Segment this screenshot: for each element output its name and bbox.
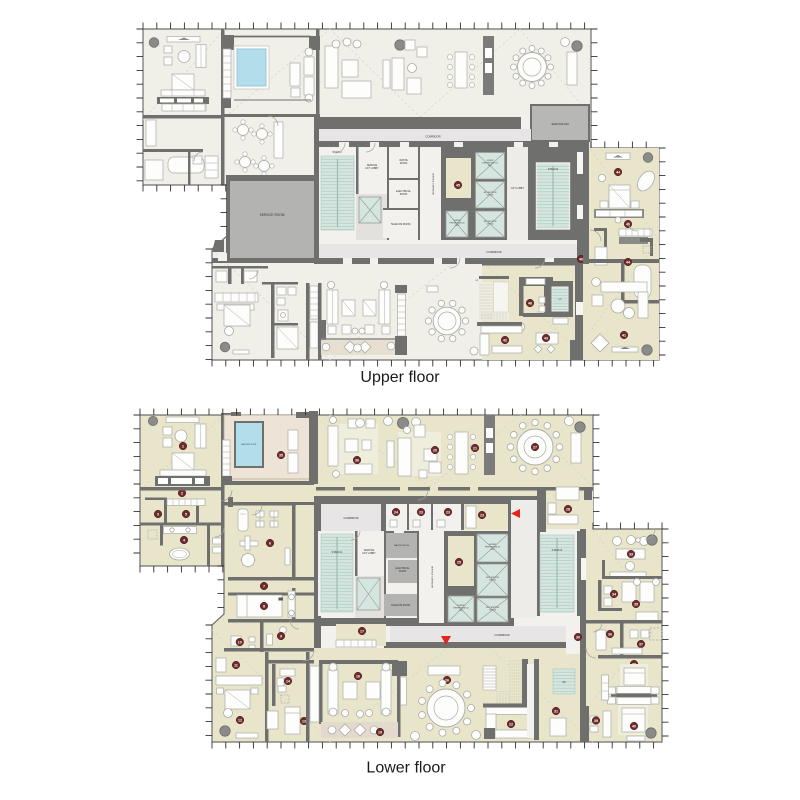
svg-text:LIFT LOBBY: LIFT LOBBY xyxy=(362,552,376,555)
svg-text:28: 28 xyxy=(566,507,570,511)
svg-text:STAIR 02: STAIR 02 xyxy=(548,168,559,171)
svg-text:UP: UP xyxy=(558,299,562,301)
svg-text:10: 10 xyxy=(238,640,242,644)
svg-text:11: 11 xyxy=(234,663,238,667)
svg-text:CORRIDOR: CORRIDOR xyxy=(486,250,501,254)
svg-text:SERVICE CORRIDOR: SERVICE CORRIDOR xyxy=(431,566,433,589)
svg-text:35: 35 xyxy=(279,453,283,457)
svg-text:SERVICE ROOM: SERVICE ROOM xyxy=(260,213,285,217)
svg-text:5: 5 xyxy=(185,512,187,516)
svg-text:21: 21 xyxy=(473,446,477,450)
svg-text:ROOM: ROOM xyxy=(400,162,407,165)
svg-text:30: 30 xyxy=(576,635,580,639)
svg-text:36: 36 xyxy=(355,458,359,462)
svg-text:ROOM: ROOM xyxy=(399,571,406,573)
svg-text:31: 31 xyxy=(554,709,558,713)
svg-text:44: 44 xyxy=(616,170,620,174)
svg-text:20: 20 xyxy=(433,448,437,452)
svg-text:7: 7 xyxy=(263,584,265,588)
svg-text:40: 40 xyxy=(632,724,636,728)
svg-text:ROOM: ROOM xyxy=(400,193,407,196)
svg-text:14: 14 xyxy=(286,679,290,683)
svg-text:CORRIDOR: CORRIDOR xyxy=(494,633,509,637)
svg-text:STAIR 02: STAIR 02 xyxy=(552,549,563,552)
svg-text:Lower floor: Lower floor xyxy=(366,760,446,777)
svg-text:LIFT 02: LIFT 02 xyxy=(487,224,495,226)
svg-text:23: 23 xyxy=(419,510,423,514)
svg-text:33: 33 xyxy=(629,552,633,556)
svg-text:WASTE ROOM: WASTE ROOM xyxy=(394,544,409,547)
svg-text:ELECTRICAL: ELECTRICAL xyxy=(395,567,410,570)
svg-text:1: 1 xyxy=(182,444,184,448)
svg-text:37: 37 xyxy=(639,642,643,646)
svg-text:9: 9 xyxy=(280,634,282,638)
svg-text:34: 34 xyxy=(612,592,616,596)
svg-text:17: 17 xyxy=(360,629,364,633)
svg-text:13: 13 xyxy=(302,719,306,723)
svg-text:44: 44 xyxy=(626,260,630,264)
svg-text:6: 6 xyxy=(269,541,271,545)
svg-text:35: 35 xyxy=(634,602,638,606)
svg-text:SERVICE RM: SERVICE RM xyxy=(551,122,569,126)
svg-text:19: 19 xyxy=(378,730,382,734)
svg-text:48: 48 xyxy=(528,301,532,305)
svg-text:STAIR 01: STAIR 01 xyxy=(332,551,343,554)
svg-text:23: 23 xyxy=(480,513,484,517)
svg-text:41: 41 xyxy=(622,333,626,337)
svg-text:40: 40 xyxy=(579,257,583,261)
svg-text:4: 4 xyxy=(183,538,185,542)
svg-text:23: 23 xyxy=(446,510,450,514)
svg-text:TELECOM ROOM: TELECOM ROOM xyxy=(391,223,411,226)
svg-text:36: 36 xyxy=(608,632,612,636)
svg-text:2: 2 xyxy=(181,491,183,495)
svg-text:39: 39 xyxy=(594,719,598,723)
svg-text:LIFT LOBBY: LIFT LOBBY xyxy=(511,188,524,190)
svg-text:3: 3 xyxy=(157,512,159,516)
svg-text:16: 16 xyxy=(356,674,360,678)
svg-text:JACUZZI POOL: JACUZZI POOL xyxy=(241,443,257,446)
svg-text:Upper floor: Upper floor xyxy=(360,369,440,386)
svg-text:UP: UP xyxy=(562,680,566,684)
svg-text:8: 8 xyxy=(263,604,265,608)
svg-text:LIFT LOBBY: LIFT LOBBY xyxy=(365,167,379,170)
svg-text:27: 27 xyxy=(533,445,537,449)
svg-text:24: 24 xyxy=(394,510,398,514)
svg-text:CORRIDOR: CORRIDOR xyxy=(343,516,358,520)
svg-text:TELECOM ROOM: TELECOM ROOM xyxy=(391,605,410,607)
svg-text:CORRIDOR: CORRIDOR xyxy=(425,135,440,139)
svg-text:LIFT 01: LIFT 01 xyxy=(487,195,495,197)
svg-text:22: 22 xyxy=(509,722,513,726)
svg-text:LIFT 01: LIFT 01 xyxy=(489,580,497,582)
svg-text:45: 45 xyxy=(456,183,460,187)
svg-text:43: 43 xyxy=(544,336,548,340)
svg-text:12: 12 xyxy=(238,718,242,722)
svg-text:SERVICE CORRIDOR: SERVICE CORRIDOR xyxy=(432,173,434,196)
svg-text:42: 42 xyxy=(503,338,507,342)
svg-text:LIFT 02: LIFT 02 xyxy=(489,610,497,612)
svg-text:25: 25 xyxy=(457,560,461,564)
